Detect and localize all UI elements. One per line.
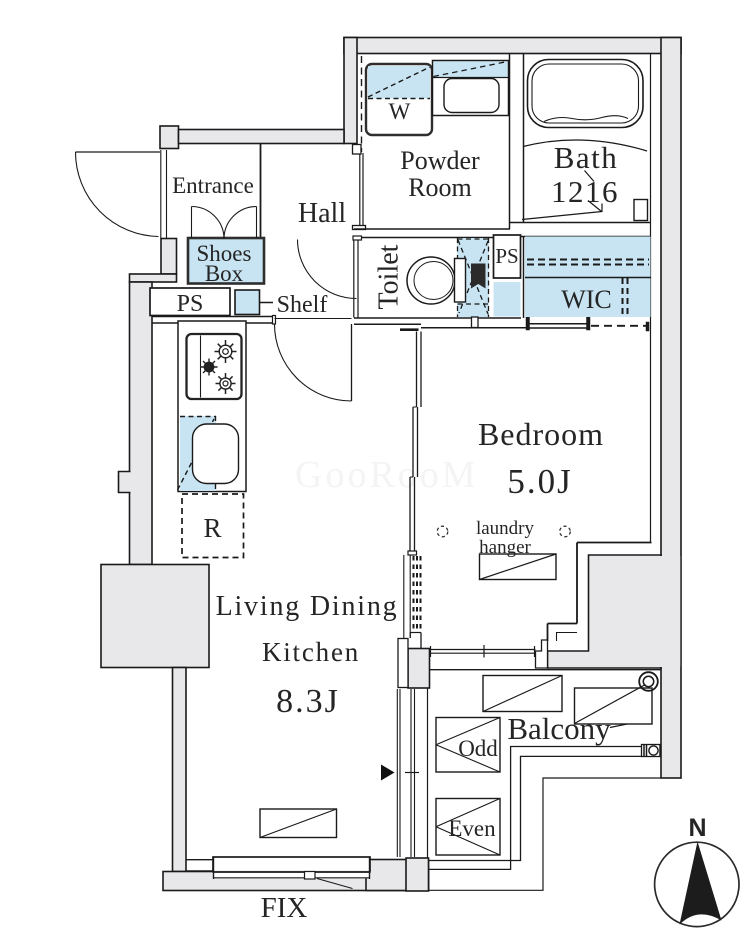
- svg-text:Balcony: Balcony: [507, 711, 611, 746]
- svg-text:Shelf: Shelf: [277, 292, 328, 318]
- svg-text:Toilet: Toilet: [373, 244, 404, 309]
- svg-text:PS: PS: [177, 291, 204, 317]
- svg-text:PS: PS: [495, 244, 518, 268]
- svg-text:Bath: Bath: [554, 140, 619, 175]
- svg-text:Odd: Odd: [458, 736, 498, 761]
- svg-text:Even: Even: [448, 816, 496, 841]
- svg-text:Bedroom: Bedroom: [478, 416, 604, 452]
- svg-text:Box: Box: [205, 261, 244, 286]
- svg-text:Living Dining: Living Dining: [216, 591, 399, 622]
- svg-text:GooRooM: GooRooM: [295, 454, 479, 496]
- svg-text:Hall: Hall: [298, 198, 346, 229]
- svg-text:Kitchen: Kitchen: [262, 637, 360, 667]
- svg-text:R: R: [203, 513, 221, 543]
- svg-text:FIX: FIX: [261, 892, 308, 924]
- svg-text:Room: Room: [408, 173, 472, 202]
- svg-text:N: N: [688, 814, 706, 842]
- svg-text:laundry: laundry: [476, 518, 535, 539]
- svg-text:WIC: WIC: [561, 285, 612, 314]
- svg-text:5.0J: 5.0J: [507, 462, 572, 501]
- svg-text:8.3J: 8.3J: [276, 683, 340, 720]
- svg-text:1216: 1216: [551, 174, 619, 209]
- svg-text:hanger: hanger: [479, 537, 531, 558]
- svg-text:Powder: Powder: [400, 146, 480, 175]
- svg-text:W: W: [389, 99, 411, 124]
- svg-text:Entrance: Entrance: [172, 173, 254, 198]
